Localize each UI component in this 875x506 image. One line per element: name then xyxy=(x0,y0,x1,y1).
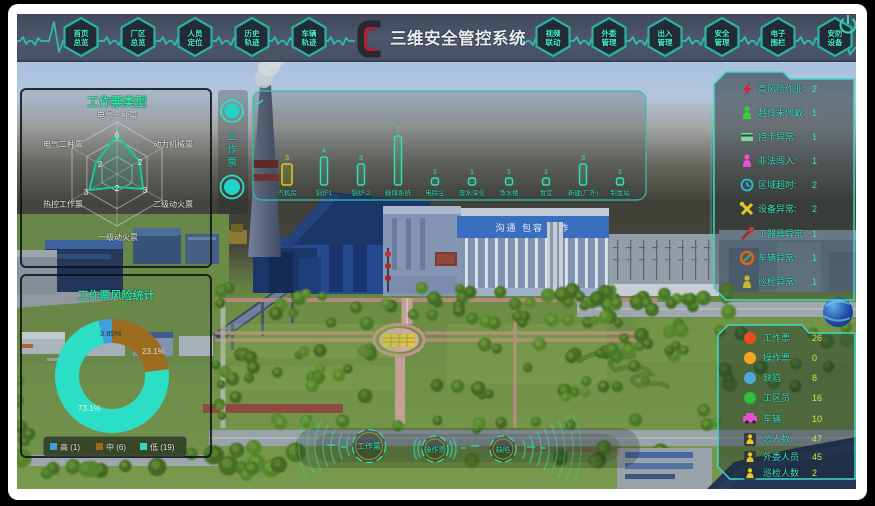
svg-text:3: 3 xyxy=(581,153,585,162)
svg-text:工作票: 工作票 xyxy=(763,332,790,343)
svg-text:热控工作票: 热控工作票 xyxy=(43,199,83,209)
svg-text:23.1%: 23.1% xyxy=(142,347,165,356)
svg-text:票: 票 xyxy=(227,157,237,169)
svg-text:安全: 安全 xyxy=(715,28,730,38)
svg-text:工作票: 工作票 xyxy=(357,441,381,451)
svg-text:持卡异常:: 持卡异常: xyxy=(758,131,797,142)
svg-text:输煤系统: 输煤系统 xyxy=(385,188,412,197)
svg-text:7: 7 xyxy=(396,125,400,134)
svg-text:食堂: 食堂 xyxy=(540,188,554,197)
svg-text:1: 1 xyxy=(812,277,817,287)
svg-text:车辆异常:: 车辆异常: xyxy=(758,252,797,263)
svg-text:工器具异常:: 工器具异常: xyxy=(758,228,806,239)
svg-text:电除尘: 电除尘 xyxy=(425,188,445,197)
svg-text:工作票风险统计: 工作票风险统计 xyxy=(78,288,155,302)
svg-text:视频: 视频 xyxy=(546,28,561,38)
svg-text:中 (6): 中 (6) xyxy=(106,442,126,452)
svg-text:45: 45 xyxy=(812,452,822,462)
svg-text:一级动火票: 一级动火票 xyxy=(98,232,138,242)
svg-text:动力机械票: 动力机械票 xyxy=(153,139,193,149)
svg-text:高 (1): 高 (1) xyxy=(60,442,80,452)
svg-text:3.85%: 3.85% xyxy=(100,329,122,338)
svg-text:2: 2 xyxy=(812,204,817,214)
svg-text:2: 2 xyxy=(812,468,817,478)
svg-text:管理: 管理 xyxy=(715,37,730,47)
svg-text:联动: 联动 xyxy=(546,37,561,47)
svg-text:1: 1 xyxy=(812,229,817,239)
svg-text:非法闯入:: 非法闯入: xyxy=(758,155,797,166)
svg-text:8: 8 xyxy=(812,373,817,383)
svg-text:巡检人数: 巡检人数 xyxy=(763,467,799,478)
svg-text:2: 2 xyxy=(812,84,817,94)
svg-text:管理: 管理 xyxy=(602,37,617,47)
svg-text:0: 0 xyxy=(812,353,817,363)
svg-text:净水楼: 净水楼 xyxy=(499,188,519,197)
svg-text:4: 4 xyxy=(322,146,326,155)
svg-text:1: 1 xyxy=(470,167,474,176)
svg-text:2: 2 xyxy=(812,180,817,190)
svg-text:越线未佩戴:: 越线未佩戴: xyxy=(758,107,806,118)
svg-text:汽机房: 汽机房 xyxy=(277,188,297,197)
svg-text:6: 6 xyxy=(115,131,120,140)
svg-text:2: 2 xyxy=(138,158,143,167)
svg-text:围栏: 围栏 xyxy=(771,37,786,47)
svg-text:工作票类型: 工作票类型 xyxy=(87,94,147,109)
svg-text:总人数: 总人数 xyxy=(763,433,790,444)
svg-text:安防: 安防 xyxy=(828,28,843,38)
svg-text:26: 26 xyxy=(812,333,822,343)
svg-text:轨迹: 轨迹 xyxy=(302,37,317,47)
svg-text:3: 3 xyxy=(285,153,289,162)
svg-text:设备异常:: 设备异常: xyxy=(758,203,797,214)
svg-text:区域超时:: 区域超时: xyxy=(758,179,797,190)
svg-text:管理: 管理 xyxy=(658,37,673,47)
svg-text:出入: 出入 xyxy=(658,28,673,38)
svg-text:操作票: 操作票 xyxy=(763,352,790,363)
svg-text:1: 1 xyxy=(812,156,817,166)
svg-text:工: 工 xyxy=(227,132,237,143)
svg-text:历史: 历史 xyxy=(245,28,260,38)
svg-text:低 (19): 低 (19) xyxy=(150,442,175,452)
svg-text:3: 3 xyxy=(84,188,89,197)
svg-text:车辆: 车辆 xyxy=(763,413,781,424)
svg-text:1: 1 xyxy=(618,167,622,176)
svg-text:人员: 人员 xyxy=(188,29,203,38)
svg-text:外委人员: 外委人员 xyxy=(763,451,799,462)
svg-text:制氢站: 制氢站 xyxy=(610,188,630,197)
svg-text:二级动火票: 二级动火票 xyxy=(153,199,193,209)
svg-text:厂区: 厂区 xyxy=(131,29,146,38)
svg-text:轨迹: 轨迹 xyxy=(245,37,260,47)
svg-text:锅炉1: 锅炉1 xyxy=(316,188,333,197)
svg-text:1: 1 xyxy=(812,253,817,263)
svg-text:电子: 电子 xyxy=(771,28,786,38)
svg-text:1: 1 xyxy=(507,167,511,176)
svg-text:新建(厂外): 新建(厂外) xyxy=(568,188,598,197)
svg-text:2: 2 xyxy=(115,184,120,193)
svg-text:1: 1 xyxy=(812,132,817,142)
svg-text:车辆: 车辆 xyxy=(302,28,317,38)
svg-text:2: 2 xyxy=(98,160,103,169)
svg-text:废水深化: 废水深化 xyxy=(459,188,486,197)
svg-text:三维安全管控系统: 三维安全管控系统 xyxy=(390,28,526,48)
svg-text:操作票: 操作票 xyxy=(425,445,446,454)
svg-text:电气二种票: 电气二种票 xyxy=(43,139,83,149)
svg-text:1: 1 xyxy=(433,167,437,176)
svg-text:1: 1 xyxy=(812,108,817,118)
svg-text:外委: 外委 xyxy=(602,28,617,38)
svg-text:73.1%: 73.1% xyxy=(78,404,101,413)
svg-text:3: 3 xyxy=(359,153,363,162)
svg-text:巡检异常:: 巡检异常: xyxy=(758,276,797,287)
svg-text:47: 47 xyxy=(812,434,822,444)
svg-text:总览: 总览 xyxy=(74,37,89,47)
svg-text:电气一种票: 电气一种票 xyxy=(97,110,137,120)
svg-text:锅炉-2: 锅炉-2 xyxy=(352,188,371,197)
svg-text:设备: 设备 xyxy=(828,37,843,47)
svg-text:总览: 总览 xyxy=(131,37,146,47)
svg-text:16: 16 xyxy=(812,393,822,403)
svg-text:首页: 首页 xyxy=(74,28,89,38)
svg-text:10: 10 xyxy=(812,414,822,424)
svg-text:作: 作 xyxy=(227,144,237,156)
svg-text:3: 3 xyxy=(143,186,148,195)
svg-text:1: 1 xyxy=(544,167,548,176)
svg-text:高风险作业:: 高风险作业: xyxy=(758,83,806,94)
svg-text:定位: 定位 xyxy=(188,37,203,47)
svg-text:缺陷: 缺陷 xyxy=(763,372,781,383)
svg-text:工区员: 工区员 xyxy=(763,393,790,403)
svg-text:缺陷: 缺陷 xyxy=(496,445,510,454)
